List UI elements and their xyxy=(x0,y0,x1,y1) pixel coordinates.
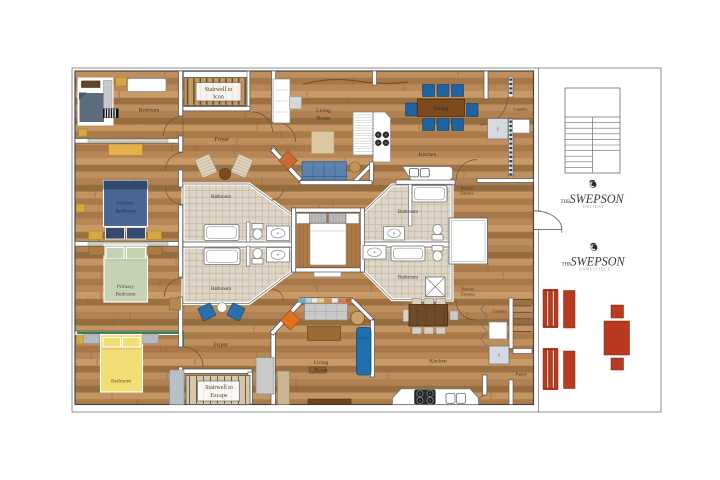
svg-text:Bedroom: Bedroom xyxy=(139,108,160,114)
svg-text:Room: Room xyxy=(317,116,331,122)
svg-text:Living: Living xyxy=(316,108,331,114)
svg-text:Bathroom: Bathroom xyxy=(211,287,231,292)
svg-text:Laundry: Laundry xyxy=(513,107,528,112)
svg-text:Primary: Primary xyxy=(117,201,135,207)
svg-text:Entrance: Entrance xyxy=(461,293,475,297)
svg-text:Escape: Escape xyxy=(211,393,228,399)
svg-text:Foyer: Foyer xyxy=(214,342,228,349)
svg-text:Icon: Icon xyxy=(213,95,224,101)
svg-text:DOMESTIQUE: DOMESTIQUE xyxy=(579,268,610,272)
svg-text:Bathroom: Bathroom xyxy=(211,195,231,200)
svg-text:Kitchen: Kitchen xyxy=(429,359,447,365)
svg-text:Entrance: Entrance xyxy=(460,192,474,196)
svg-text:Stairwell to: Stairwell to xyxy=(205,385,233,391)
svg-text:Bathroom: Bathroom xyxy=(398,276,418,281)
svg-text:Primary: Primary xyxy=(117,284,135,290)
svg-text:Dining: Dining xyxy=(434,106,449,112)
svg-text:Room: Room xyxy=(314,368,328,374)
svg-text:Kitchen: Kitchen xyxy=(419,152,437,158)
svg-text:Bedroom: Bedroom xyxy=(115,209,136,215)
svg-text:Bathroom: Bathroom xyxy=(398,210,418,215)
svg-text:Primary: Primary xyxy=(461,187,473,191)
svg-text:Living: Living xyxy=(314,360,329,366)
svg-text:HOLIDAY: HOLIDAY xyxy=(583,205,605,209)
svg-text:Laundry: Laundry xyxy=(492,309,507,314)
svg-text:Primary: Primary xyxy=(462,288,474,292)
svg-text:Bedroom: Bedroom xyxy=(111,379,132,385)
svg-text:Foyer: Foyer xyxy=(215,136,229,143)
svg-text:SWEPSON: SWEPSON xyxy=(570,192,625,206)
svg-text:SWEPSON: SWEPSON xyxy=(571,255,626,269)
svg-text:Stairwell to: Stairwell to xyxy=(205,87,233,93)
svg-text:Pantry: Pantry xyxy=(516,372,528,377)
svg-text:Bedroom: Bedroom xyxy=(115,292,136,298)
